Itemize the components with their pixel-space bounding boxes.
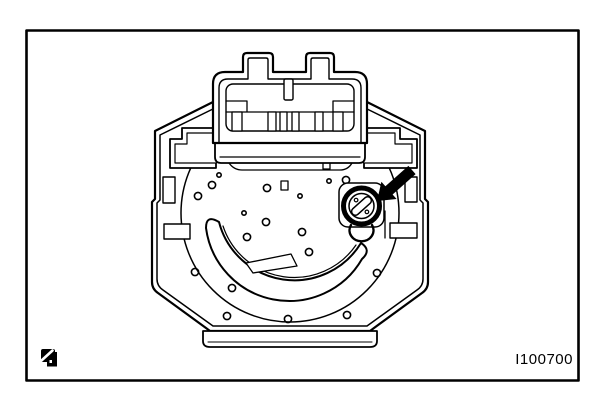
screw-head: [344, 188, 380, 224]
connector: [213, 53, 367, 143]
figure-page: I100700: [0, 0, 608, 404]
component-diagram-svg: [0, 0, 608, 404]
connector-base: [215, 143, 365, 163]
manual-reference-icon: [41, 349, 57, 367]
bottom-band: [203, 331, 377, 347]
connector-center-post: [284, 79, 293, 100]
figure-code: I100700: [515, 351, 573, 368]
